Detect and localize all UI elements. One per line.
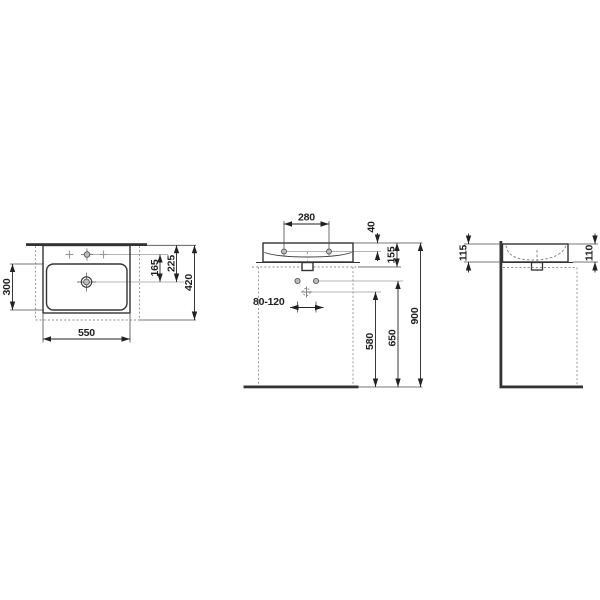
dim-label-155: 155 bbox=[386, 246, 398, 263]
side-view: 115 110 bbox=[458, 234, 599, 389]
bowl-profile-dashed bbox=[506, 246, 566, 261]
dim-80-120: 80-120 bbox=[253, 296, 324, 313]
dim-580: 580 bbox=[364, 292, 376, 387]
dim-label-550: 550 bbox=[78, 327, 95, 339]
dim-label-115: 115 bbox=[458, 244, 470, 261]
trap-side-outline bbox=[532, 263, 543, 271]
floor-line bbox=[244, 386, 359, 389]
dim-110: 110 bbox=[568, 234, 598, 273]
dim-label-300: 300 bbox=[1, 278, 13, 295]
dim-label-110: 110 bbox=[584, 244, 596, 261]
bowl-rim-curve bbox=[265, 253, 352, 258]
basin-side-outline bbox=[503, 244, 569, 262]
dim-300: 300 bbox=[1, 264, 44, 310]
waste-outlet-icon bbox=[301, 287, 312, 298]
plan-view: 300 550 165 225 420 bbox=[1, 243, 196, 342]
dim-650: 650 bbox=[387, 281, 399, 387]
dim-40: 40 bbox=[366, 221, 378, 261]
dim-280: 280 bbox=[284, 212, 329, 248]
dim-label-900: 900 bbox=[409, 307, 421, 324]
dim-155: 155 bbox=[386, 243, 398, 267]
dim-label-280: 280 bbox=[298, 212, 315, 224]
dim-label-580: 580 bbox=[364, 333, 376, 350]
dim-label-165: 165 bbox=[149, 259, 161, 276]
technical-drawing-canvas: 300 550 165 225 420 bbox=[0, 0, 600, 600]
front-view: 280 40 155 80-120 580 650 bbox=[244, 212, 423, 389]
trap-outline bbox=[302, 263, 313, 271]
dim-900: 900 bbox=[409, 243, 421, 387]
washbasin-dimension-drawing: 300 550 165 225 420 bbox=[0, 0, 600, 600]
dim-label-420: 420 bbox=[183, 274, 195, 291]
drain-icon bbox=[77, 273, 96, 292]
dim-label-80-120: 80-120 bbox=[253, 296, 285, 308]
basin-front-outline bbox=[263, 243, 353, 262]
dim-label-650: 650 bbox=[387, 329, 399, 346]
dim-550: 550 bbox=[43, 314, 130, 343]
taphole-icon bbox=[81, 249, 93, 261]
dim-420: 420 bbox=[183, 245, 195, 320]
dim-label-225: 225 bbox=[165, 255, 177, 272]
dim-165: 165 bbox=[149, 255, 161, 283]
wall-line-side bbox=[500, 241, 503, 388]
dim-label-40: 40 bbox=[366, 221, 378, 233]
supply-valve-icons bbox=[295, 278, 319, 283]
dim-225: 225 bbox=[165, 245, 177, 282]
dim-115: 115 bbox=[458, 234, 503, 273]
floor-line-side bbox=[500, 386, 584, 389]
